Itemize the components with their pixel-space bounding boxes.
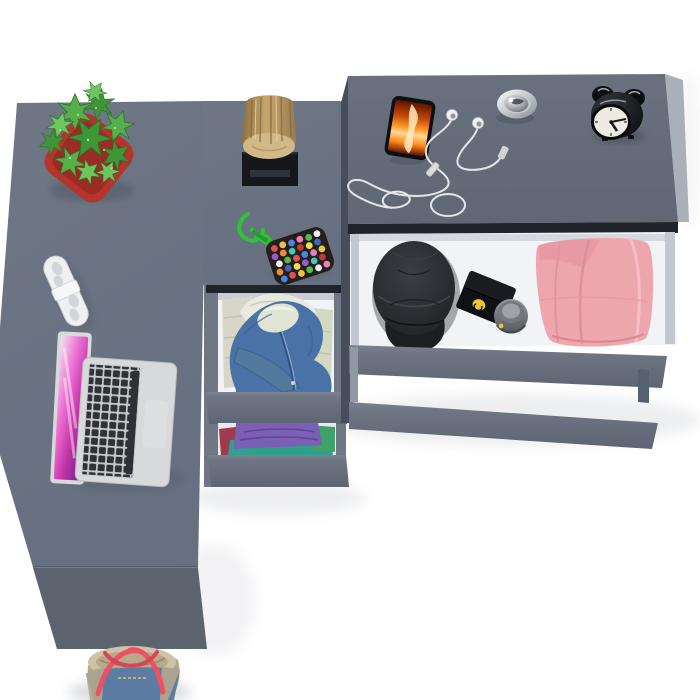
scene-canvas (0, 0, 700, 700)
column-drawer-front-2 (208, 455, 349, 487)
gray-jar (494, 299, 528, 333)
column-drawer-gap (206, 285, 342, 293)
metal-knob (496, 90, 537, 125)
dresser-right-slide (665, 232, 675, 344)
wood-stump (242, 95, 298, 186)
dresser-left-slide (351, 234, 359, 345)
laptop-trackpad (142, 399, 168, 448)
folded-clothes (218, 423, 336, 456)
scene-topview-furniture (0, 0, 700, 700)
dresser-drawer-gap (348, 222, 678, 234)
dresser-drawer-front-1 (349, 345, 667, 388)
column-drawer-front-1 (206, 392, 347, 424)
dresser-left-rail-low (350, 347, 358, 402)
desk-front-panel (33, 568, 207, 649)
smartphone (384, 95, 437, 161)
alarm-clock (591, 86, 646, 144)
tote-bag (86, 646, 180, 700)
dresser-rail (638, 369, 649, 403)
pink-pants (536, 238, 653, 347)
laptop-body (75, 357, 177, 487)
